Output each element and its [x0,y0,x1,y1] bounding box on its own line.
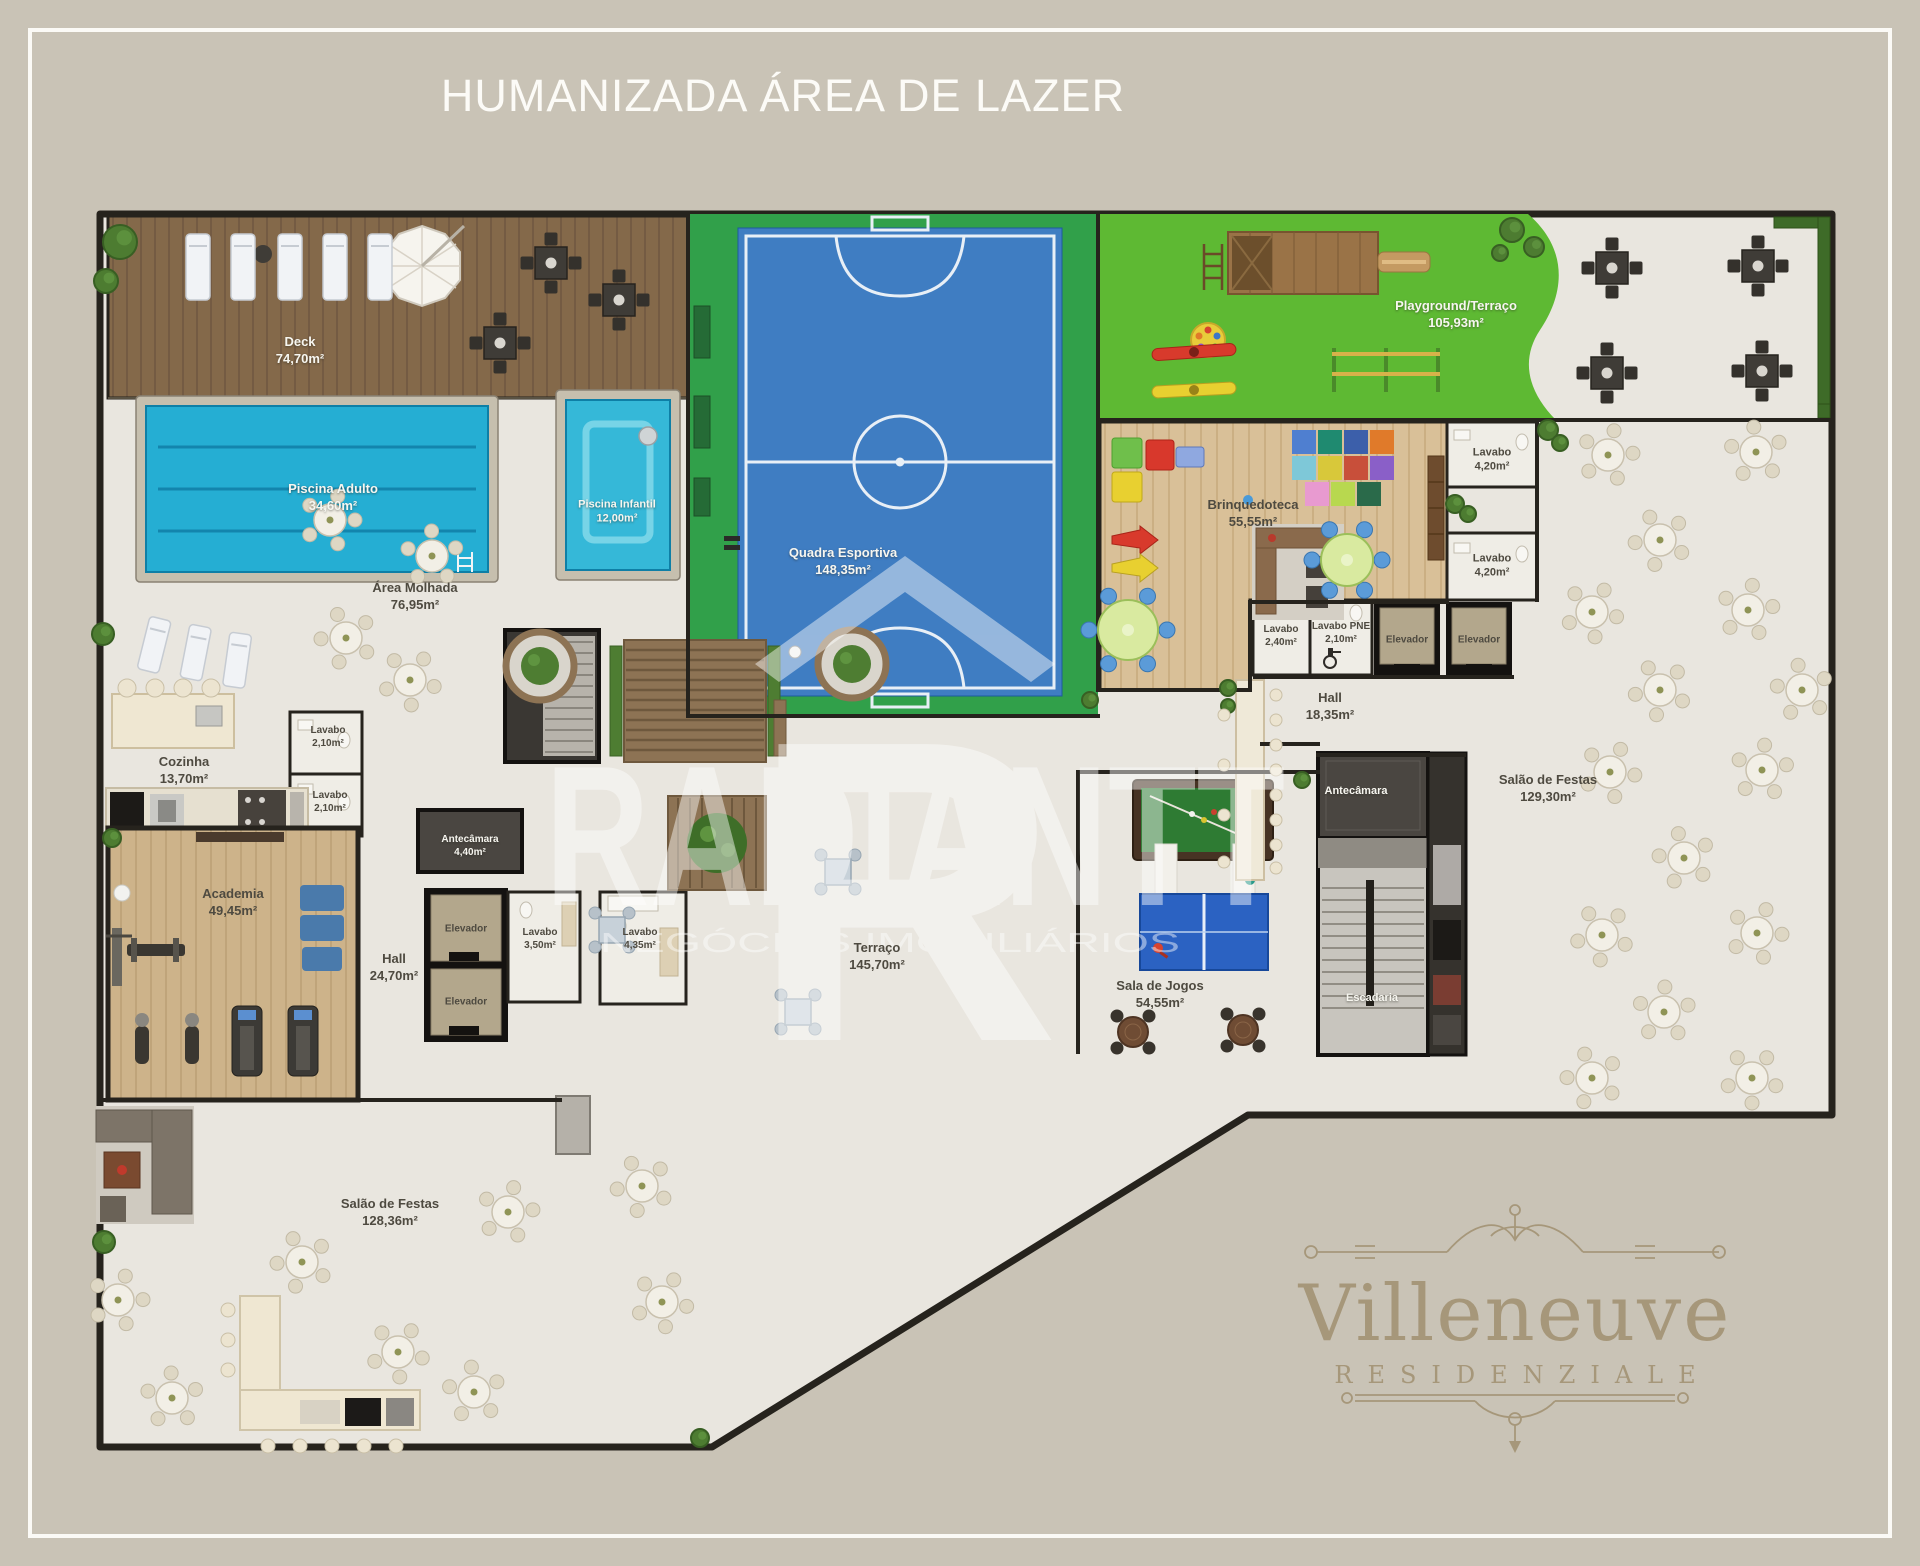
room-area: 148,35m² [789,562,897,579]
room-label-deck: Deck74,70m² [276,334,324,368]
room-label-elevador-1: Elevador [1386,634,1428,647]
room-label-salao-esquerda: Salão de Festas128,36m² [341,1196,439,1230]
room-label-brinquedoteca: Brinquedoteca55,55m² [1207,497,1298,531]
room-label-antecamara-direita: Antecâmara [1325,784,1388,798]
room-label-lavabo-4: Lavabo2,10m² [310,724,345,750]
room-label-lavabo-1: Lavabo4,20m² [1473,446,1512,475]
room-name: Lavabo [1473,552,1512,566]
room-name: Elevador [1386,634,1428,647]
room-label-elevador-4: Elevador [445,996,487,1009]
room-name: Brinquedoteca [1207,497,1298,514]
room-name: Lavabo [622,926,657,939]
logo-subtitle: RESIDENZIALE [1275,1361,1755,1389]
room-label-hall-direita: Hall18,35m² [1306,690,1354,724]
room-label-lavabo-5: Lavabo2,10m² [312,789,347,815]
room-name: Lavabo [312,789,347,802]
room-area: 74,70m² [276,351,324,368]
room-label-piscina-infantil: Piscina Infantil12,00m² [578,498,656,527]
room-label-elevador-2: Elevador [1458,634,1500,647]
room-area: 2,10m² [1312,633,1370,646]
room-name: Cozinha [159,754,210,771]
room-name: Academia [202,886,263,903]
room-name: Salão de Festas [1499,772,1597,789]
room-name: Piscina Infantil [578,498,656,512]
room-label-area-molhada: Área Molhada76,95m² [372,580,457,614]
room-label-lavabo-2: Lavabo4,20m² [1473,552,1512,581]
room-label-antecamara-esquerda: Antecâmara4,40m² [441,833,498,859]
room-label-piscina-adulto: Piscina Adulto34,60m² [288,481,378,515]
room-name: Antecâmara [1325,784,1388,798]
room-name: Salão de Festas [341,1196,439,1213]
room-label-lavabo-pne: Lavabo PNE2,10m² [1312,620,1370,646]
room-name: Quadra Esportiva [789,545,897,562]
room-label-elevador-3: Elevador [445,923,487,936]
room-label-terraco: Terraço145,70m² [849,940,905,974]
room-area: 105,93m² [1395,315,1517,332]
room-area: 2,10m² [312,802,347,815]
room-name: Hall [1306,690,1354,707]
room-area: 4,20m² [1473,460,1512,474]
logo-ornament-top [1295,1196,1735,1270]
room-area: 12,00m² [578,512,656,526]
room-label-escadaria: Escadaria [1346,991,1398,1005]
room-name: Sala de Jogos [1116,978,1203,995]
logo-ornament-bottom [1295,1389,1735,1455]
room-name: Antecâmara [441,833,498,846]
room-label-sala-jogos: Sala de Jogos54,55m² [1116,978,1203,1012]
room-area: 13,70m² [159,771,210,788]
room-name: Elevador [445,923,487,936]
room-area: 129,30m² [1499,789,1597,806]
room-name: Lavabo [310,724,345,737]
room-name: Playground/Terraço [1395,298,1517,315]
room-label-lavabo-7: Lavabo4,35m² [622,926,657,952]
room-area: 76,95m² [372,597,457,614]
room-name: Terraço [849,940,905,957]
room-name: Elevador [445,996,487,1009]
room-area: 2,40m² [1263,636,1298,649]
room-area: 4,40m² [441,846,498,859]
room-name: Lavabo [1473,446,1512,460]
room-area: 55,55m² [1207,514,1298,531]
room-area: 128,36m² [341,1213,439,1230]
room-label-lavabo-3: Lavabo2,40m² [1263,623,1298,649]
room-area: 24,70m² [370,968,418,985]
room-area: 145,70m² [849,957,905,974]
room-name: Lavabo PNE [1312,620,1370,633]
developer-logo: Villeneuve RESIDENZIALE [1275,1196,1755,1460]
room-label-cozinha: Cozinha13,70m² [159,754,210,788]
room-name: Deck [276,334,324,351]
room-name: Hall [370,951,418,968]
room-area: 18,35m² [1306,707,1354,724]
page-title: HUMANIZADA ÁREA DE LAZER [441,70,1125,122]
room-name: Piscina Adulto [288,481,378,498]
room-label-academia: Academia49,45m² [202,886,263,920]
room-area: 4,35m² [622,939,657,952]
room-name: Elevador [1458,634,1500,647]
room-name: Área Molhada [372,580,457,597]
room-label-hall-esquerda: Hall24,70m² [370,951,418,985]
room-name: Lavabo [1263,623,1298,636]
room-area: 34,60m² [288,498,378,515]
room-label-playground: Playground/Terraço105,93m² [1395,298,1517,332]
logo-name: Villeneuve [1275,1275,1755,1353]
room-area: 2,10m² [310,737,345,750]
room-label-quadra: Quadra Esportiva148,35m² [789,545,897,579]
room-name: Escadaria [1346,991,1398,1005]
room-area: 4,20m² [1473,566,1512,580]
room-label-salao-direita: Salão de Festas129,30m² [1499,772,1597,806]
room-area: 54,55m² [1116,995,1203,1012]
room-label-lavabo-6: Lavabo3,50m² [522,926,557,952]
room-area: 49,45m² [202,903,263,920]
room-name: Lavabo [522,926,557,939]
room-area: 3,50m² [522,939,557,952]
